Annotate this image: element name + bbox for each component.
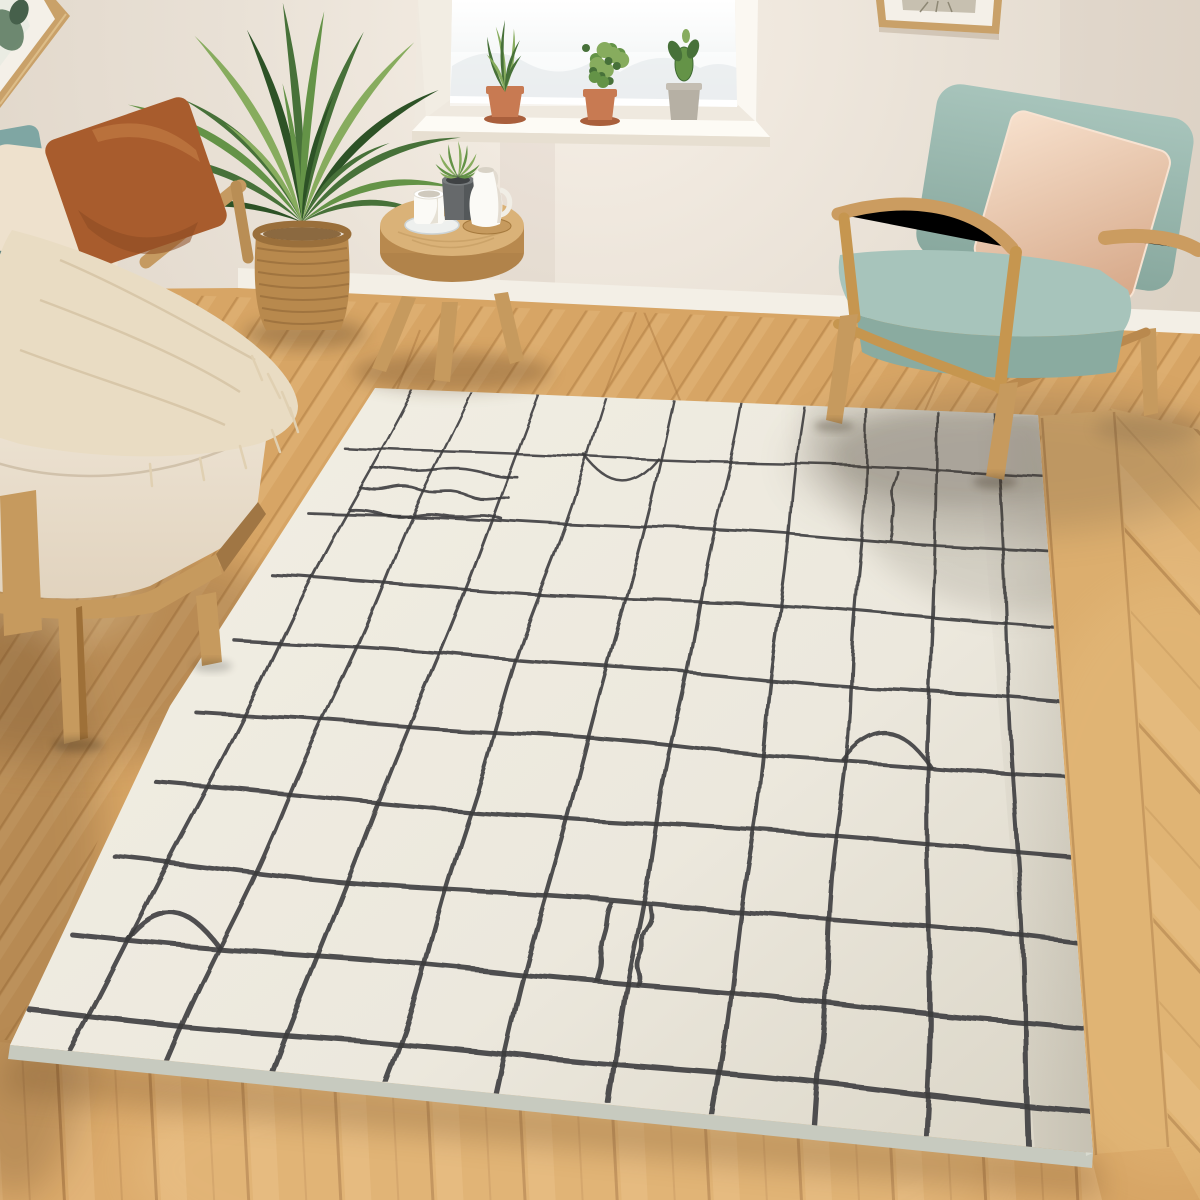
sofa-arm-post: [0, 490, 42, 636]
jug-opening: [478, 167, 494, 173]
mug-interior: [418, 191, 440, 198]
window-jamb-right: [735, 0, 758, 122]
living-room-photo: [0, 0, 1200, 1200]
window: [412, 0, 770, 147]
scene: [0, 0, 1200, 1200]
basket-opening: [263, 228, 341, 241]
